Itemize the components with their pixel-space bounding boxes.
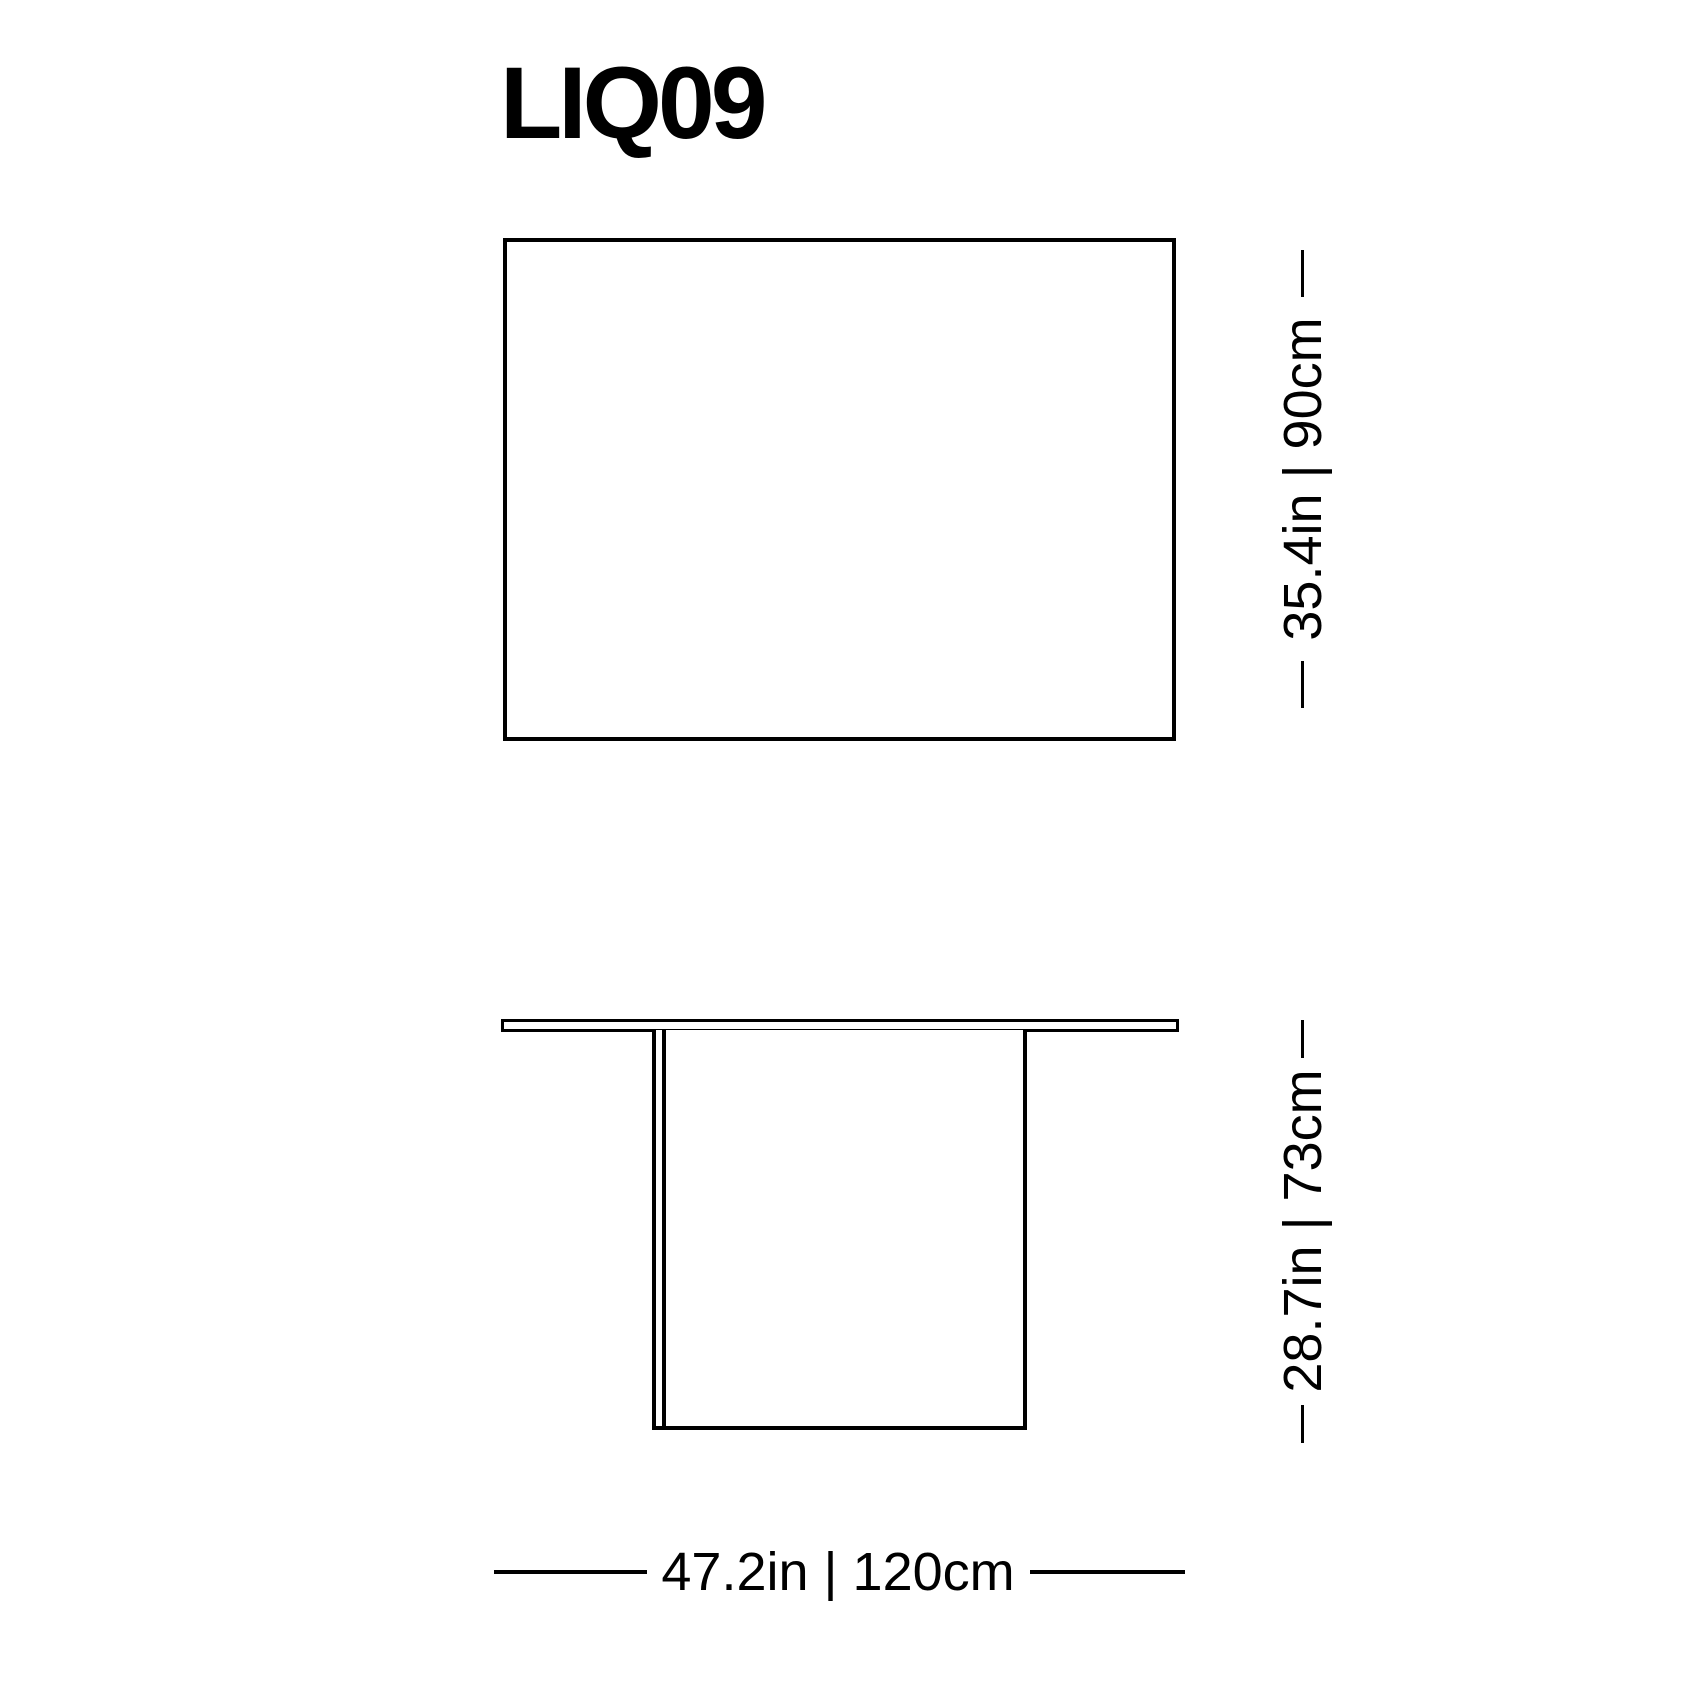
width-dimension-label: 47.2in | 120cm [661, 1545, 1014, 1599]
depth-dimension-line-bottom-segment [1301, 661, 1304, 708]
height-dimension-line-top-segment [1301, 1020, 1304, 1058]
width-dimension-line-right-segment [1030, 1570, 1185, 1574]
front-view-pedestal-inner-edge [662, 1030, 666, 1427]
spec-sheet: LIQ09 35.4in | 90cm 28.7in | 73cm 47.2in… [0, 0, 1700, 1700]
top-view-outline [503, 238, 1176, 741]
depth-dimension-line-top-segment [1301, 250, 1304, 297]
width-dimension-line-left-segment [494, 1570, 647, 1574]
height-dimension-line-bottom-segment [1301, 1405, 1304, 1443]
front-view-pedestal [652, 1030, 1027, 1430]
height-dimension-label: 28.7in | 73cm [1276, 1069, 1330, 1392]
depth-dimension-label: 35.4in | 90cm [1276, 317, 1330, 640]
product-title: LIQ09 [500, 50, 763, 157]
